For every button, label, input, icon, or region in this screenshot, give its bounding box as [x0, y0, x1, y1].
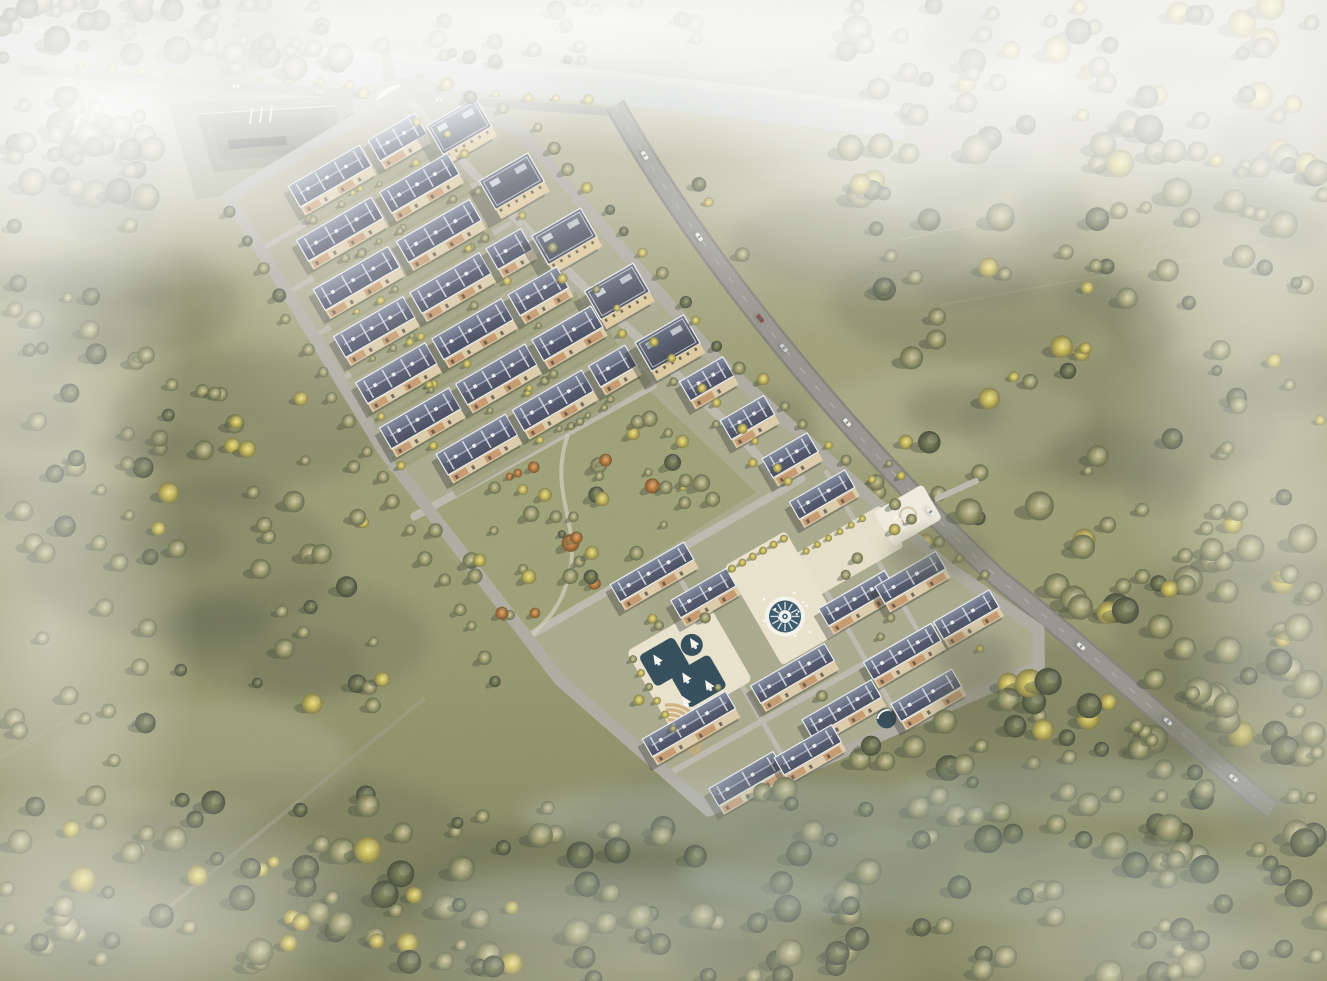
fog-overlay: [0, 0, 1327, 981]
film-grain: [0, 0, 1327, 981]
aerial-rendering-canvas: [0, 0, 1327, 981]
aerial-rendering-figure: [0, 0, 1327, 981]
